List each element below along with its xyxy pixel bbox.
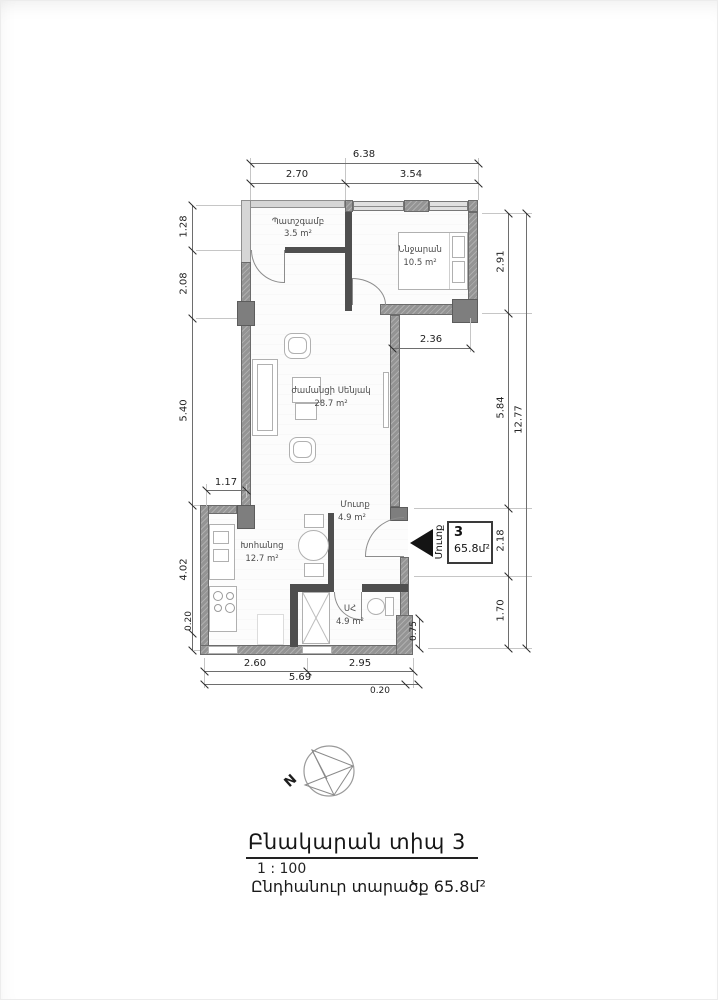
entry-door-leaf (365, 556, 404, 557)
bedroom-area-label: 10.5 m² (375, 258, 465, 268)
bottom-wall-window (302, 646, 332, 654)
balcony-area-label: 3.5 m² (253, 229, 343, 239)
entry-direction-label: Մուտք (434, 523, 446, 561)
bottom-wall-window (208, 646, 238, 654)
dim-line-left-chain (192, 205, 193, 650)
stove-burner (225, 603, 235, 613)
entry-arrow-icon (410, 529, 433, 557)
dim-label-075: 0.75 (409, 613, 419, 649)
dim-line-236 (392, 348, 470, 349)
dim-line-top-total (250, 163, 478, 164)
dim-extension-line (196, 250, 241, 251)
bath-top-wall (362, 584, 408, 592)
balcony-door-leaf (284, 250, 285, 283)
dim-line-right-chain (508, 213, 509, 648)
stove-burner (213, 591, 223, 601)
dim-label-top-left: 2.70 (267, 169, 327, 180)
dim-label-right-total: 12.77 (514, 399, 525, 441)
dim-line-075 (419, 618, 420, 648)
armchair-seat (288, 337, 307, 354)
dim-label-right-2: 5.84 (496, 390, 507, 426)
dim-extension-line (196, 318, 237, 319)
bedroom-top-wall (345, 200, 353, 212)
plan-total-area: Ընդհանուր տարածք 65.8մ² (251, 877, 486, 896)
dim-extension-line (428, 648, 532, 649)
dim-label-right-4: 1.70 (496, 593, 507, 629)
hall-label: Մուտք (310, 500, 400, 510)
dim-label-right-3: 2.18 (496, 523, 507, 559)
living-room-area-label: 28.7 m² (286, 399, 376, 409)
bedroom-top-corner (468, 200, 478, 212)
dim-extension-line (414, 576, 532, 577)
bath-label: ՍՀ (305, 604, 395, 614)
bath-left-wall (290, 584, 298, 647)
dim-line-bottom-total (204, 684, 419, 685)
kitchen-hall-divider (328, 513, 334, 584)
dim-extension-line (345, 158, 346, 200)
stove-burner (214, 604, 222, 612)
dim-label-117: 1.17 (203, 477, 249, 488)
dim-label-top-total: 6.38 (334, 149, 394, 160)
kitchen-label: Խոհանոց (217, 541, 307, 551)
dim-label-bottom-1: 2.60 (225, 658, 285, 669)
radiator-niche (383, 372, 389, 428)
armchair-seat (293, 441, 312, 458)
dim-label-left-2: 2.08 (179, 266, 190, 302)
left-wall-column (237, 301, 255, 326)
compass-rose (291, 739, 363, 811)
balcony-left-rail (241, 200, 251, 265)
apartment-number: 3 (454, 525, 486, 542)
hall-area-label: 4.9 m² (307, 513, 397, 523)
dim-label-bottom-2: 2.95 (330, 658, 390, 669)
balcony-bottom-wall (285, 247, 345, 253)
bedroom-top-pier (404, 200, 429, 212)
dim-line-117 (206, 490, 246, 491)
dim-label-right-1: 2.91 (496, 244, 507, 280)
apartment-info-box: 3 65.8մ² (447, 521, 493, 564)
kitchen-area-label: 12.7 m² (217, 554, 307, 564)
bath-area-label: 4.9 m² (305, 617, 395, 627)
dining-chair (304, 563, 324, 577)
balcony-top-rail (241, 200, 345, 208)
stove-burner (226, 592, 234, 600)
dim-label-bottom-total: 5.69 (270, 672, 330, 683)
dim-extension-line (194, 650, 200, 651)
lower-left-wall (200, 505, 209, 655)
dim-label-top-right: 3.54 (381, 169, 441, 180)
dim-extension-line (414, 508, 532, 509)
bedroom-window (353, 201, 404, 211)
living-right-wall (390, 315, 400, 507)
dim-line-right-total (526, 213, 527, 648)
bedroom-label: Ննջարան (375, 245, 465, 255)
dim-extension-line (196, 205, 241, 206)
dim-label-left-1: 1.28 (179, 209, 190, 245)
dim-label-left-4: 4.02 (179, 552, 190, 588)
living-room-label: ժամանցի Սենյակ (286, 386, 376, 396)
bedroom-window (429, 201, 468, 211)
bath-top-wall (296, 584, 334, 592)
balcony-label: Պատշգամբ (253, 217, 343, 227)
kitchen-cabinet (257, 614, 284, 645)
apartment-area: 65.8մ² (454, 542, 486, 556)
bedroom-living-divider (345, 212, 352, 311)
dim-label-left-3: 5.40 (179, 393, 190, 429)
dim-extension-line (194, 505, 200, 506)
dim-label-bottom-020: 0.20 (362, 686, 398, 696)
dim-line-top-chain (250, 183, 478, 184)
dim-label-236: 2.36 (401, 334, 461, 345)
plan-scale: 1 : 100 (257, 861, 306, 877)
drawing-page: Պատշգամբ 3.5 m² Ննջարան 10.5 m² ժամանցի … (0, 0, 718, 1000)
left-wall-column (237, 505, 255, 529)
bedroom-corner-column (452, 299, 478, 323)
dim-label-left-5: 0.20 (184, 603, 194, 639)
plan-title: Բնակարան տիպ 3 (246, 830, 478, 859)
left-outer-wall (241, 262, 251, 508)
sofa-seat (257, 364, 273, 431)
